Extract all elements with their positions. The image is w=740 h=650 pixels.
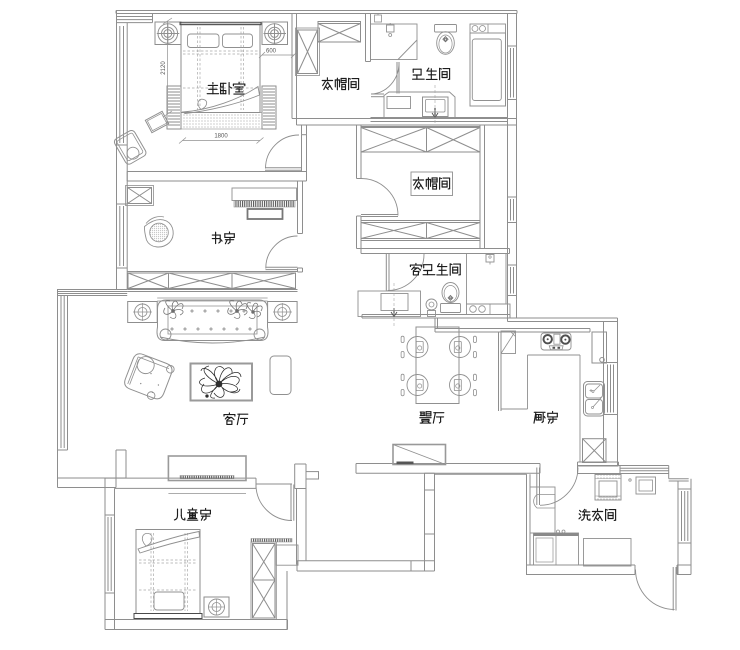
svg-text:600: 600 — [266, 49, 277, 55]
svg-text:2120: 2120 — [161, 61, 167, 75]
svg-text:1800: 1800 — [214, 134, 228, 140]
